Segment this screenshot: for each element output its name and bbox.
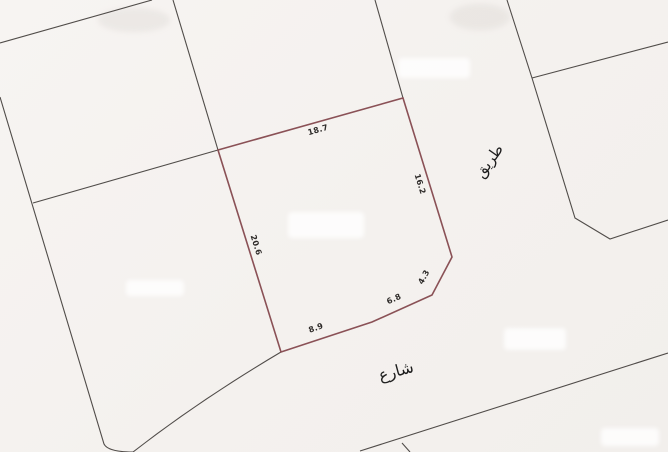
boundary-line-east-road-boundary [507,0,668,239]
boundary-line-road-upper-edge-curve [133,352,281,452]
cadastral-map: 18.716.24.36.88.920.6طريقشارع [0,0,668,452]
boundary-line-south-parcel-corner-stub [402,443,410,452]
survey-svg [0,0,668,452]
boundary-line-west-parcel-left-edge [0,97,133,452]
boundary-line-northwest-parcel-bottom-edge [33,150,218,203]
boundary-line-northwest-parcel-top-edge [0,0,152,43]
boundary-line-east-parcel-top-edge [532,42,668,78]
parcel-outline [218,98,452,352]
boundary-line-northwest-parcel-right-edge [173,0,218,150]
boundary-line-north-parcel-divider [375,0,403,98]
